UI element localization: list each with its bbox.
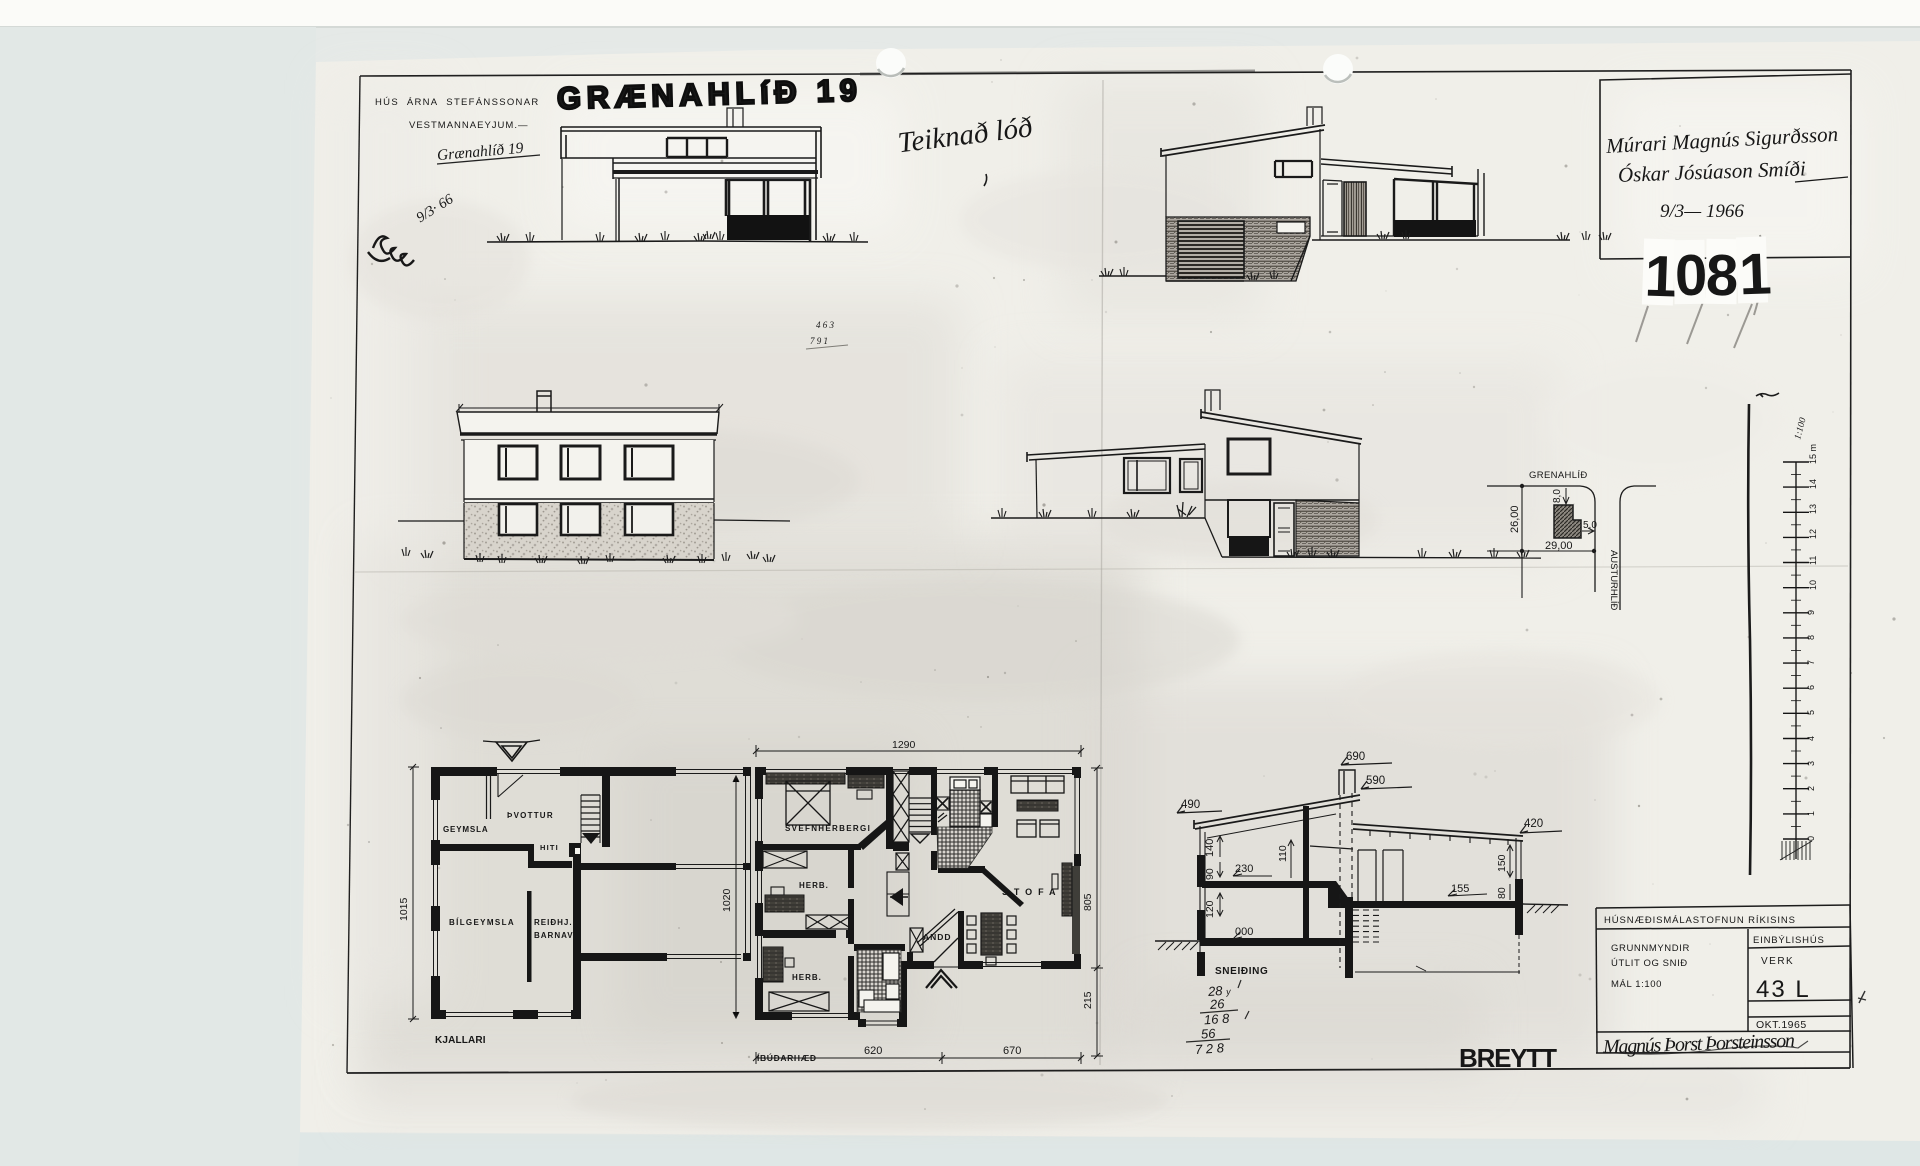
svg-text:1: 1 — [1644, 244, 1679, 310]
svg-text:1: 1 — [1738, 241, 1773, 307]
svg-text:HITI: HITI — [540, 843, 559, 852]
svg-text:1: 1 — [1806, 811, 1816, 816]
svg-text:GEYMSLA: GEYMSLA — [443, 825, 489, 834]
svg-text:805: 805 — [1082, 893, 1094, 911]
svg-text:215: 215 — [1082, 991, 1094, 1009]
svg-text:HÚSNÆÐISMÁLASTOFNUN RÍKISINS: HÚSNÆÐISMÁLASTOFNUN RÍKISINS — [1604, 915, 1796, 926]
svg-text:BÍLGEYMSLA: BÍLGEYMSLA — [449, 918, 515, 927]
svg-text:110: 110 — [1277, 845, 1289, 862]
svg-text:14: 14 — [1808, 479, 1818, 489]
svg-text:12: 12 — [1808, 529, 1818, 539]
svg-text:590: 590 — [1366, 775, 1385, 787]
svg-text:STOFA: STOFA — [1002, 887, 1060, 897]
svg-text:5,0: 5,0 — [1583, 520, 1597, 531]
svg-text:AUSTURHLÍÐ: AUSTURHLÍÐ — [1608, 550, 1619, 612]
svg-text:670: 670 — [1003, 1045, 1021, 1057]
svg-text:EINBÝLISHÚS: EINBÝLISHÚS — [1753, 935, 1825, 946]
svg-text:SVEFNHERBERGI: SVEFNHERBERGI — [785, 824, 871, 833]
svg-text:6: 6 — [1806, 685, 1816, 690]
svg-text:VESTMANNAEYJUM.—: VESTMANNAEYJUM.— — [409, 120, 528, 131]
svg-text:11: 11 — [1808, 556, 1818, 565]
svg-text:KJALLARI: KJALLARI — [435, 1035, 488, 1046]
svg-text:10: 10 — [1808, 580, 1818, 590]
svg-text:16 8: 16 8 — [1203, 1011, 1230, 1028]
svg-text:1020: 1020 — [721, 888, 733, 912]
svg-text:HÚS ÁRNA STEFÁNSSONAR: HÚS ÁRNA STEFÁNSSONAR — [375, 97, 540, 108]
svg-text:43 L: 43 L — [1756, 976, 1811, 1003]
svg-text:BARNAV.: BARNAV. — [534, 931, 576, 940]
svg-text:1015: 1015 — [398, 897, 410, 921]
svg-text:SNEIÐING: SNEIÐING — [1215, 966, 1270, 977]
svg-text:000: 000 — [1235, 926, 1253, 938]
svg-text:HERB.: HERB. — [792, 973, 822, 982]
svg-text:8,0: 8,0 — [1552, 489, 1563, 503]
svg-text:ÚTLIT OG SNIÐ: ÚTLIT OG SNIÐ — [1611, 958, 1688, 969]
svg-text:REIÐHJ.: REIÐHJ. — [534, 918, 573, 927]
svg-text:230: 230 — [1235, 863, 1253, 875]
svg-text:HERB.: HERB. — [799, 881, 829, 890]
svg-text:80: 80 — [1496, 887, 1508, 899]
svg-text:150: 150 — [1496, 854, 1508, 872]
svg-text:ANDD: ANDD — [923, 932, 952, 942]
svg-text:140: 140 — [1204, 839, 1216, 857]
svg-text:56: 56 — [1200, 1026, 1216, 1042]
svg-text:7: 7 — [1806, 660, 1816, 665]
svg-text:7 9 1: 7 9 1 — [810, 336, 828, 346]
svg-text:4: 4 — [1806, 736, 1816, 741]
svg-text:8: 8 — [1705, 243, 1738, 309]
svg-text:29,00: 29,00 — [1545, 540, 1573, 552]
svg-text:13: 13 — [1808, 504, 1818, 514]
svg-text:GRUNNMYNDIR: GRUNNMYNDIR — [1611, 943, 1690, 954]
svg-text:0: 0 — [1674, 243, 1707, 309]
svg-text:7 2 8: 7 2 8 — [1195, 1040, 1226, 1057]
svg-text:90: 90 — [1204, 868, 1216, 880]
svg-text:490: 490 — [1181, 799, 1200, 811]
svg-text:3: 3 — [1806, 761, 1816, 766]
svg-text:GRENAHLÍÐ: GRENAHLÍÐ — [1529, 470, 1589, 481]
svg-text:620: 620 — [864, 1045, 882, 1057]
svg-text:0: 0 — [1806, 836, 1816, 841]
svg-text:5: 5 — [1806, 710, 1816, 715]
svg-text:8: 8 — [1806, 635, 1816, 640]
svg-text:ÍBÚÐARHÆÐ: ÍBÚÐARHÆÐ — [757, 1052, 817, 1063]
svg-text:1290: 1290 — [892, 739, 916, 751]
svg-text:9: 9 — [1806, 610, 1816, 615]
svg-text:15 m: 15 m — [1808, 444, 1818, 464]
svg-text:2: 2 — [1806, 786, 1816, 791]
svg-text:VERK: VERK — [1761, 956, 1794, 967]
svg-text:9/3— 1966: 9/3— 1966 — [1660, 201, 1744, 222]
svg-text:ÞVOTTUR: ÞVOTTUR — [507, 811, 554, 820]
svg-text:4 6 3: 4 6 3 — [816, 320, 835, 330]
svg-text:26,00: 26,00 — [1509, 505, 1521, 533]
svg-text:690: 690 — [1346, 751, 1365, 763]
svg-text:26: 26 — [1208, 996, 1225, 1012]
svg-text:120: 120 — [1204, 900, 1216, 918]
svg-text:MÁL 1:100: MÁL 1:100 — [1611, 979, 1662, 990]
svg-text:155: 155 — [1451, 883, 1469, 895]
svg-text:BREYTT: BREYTT — [1459, 1043, 1557, 1073]
svg-text:420: 420 — [1524, 818, 1543, 830]
